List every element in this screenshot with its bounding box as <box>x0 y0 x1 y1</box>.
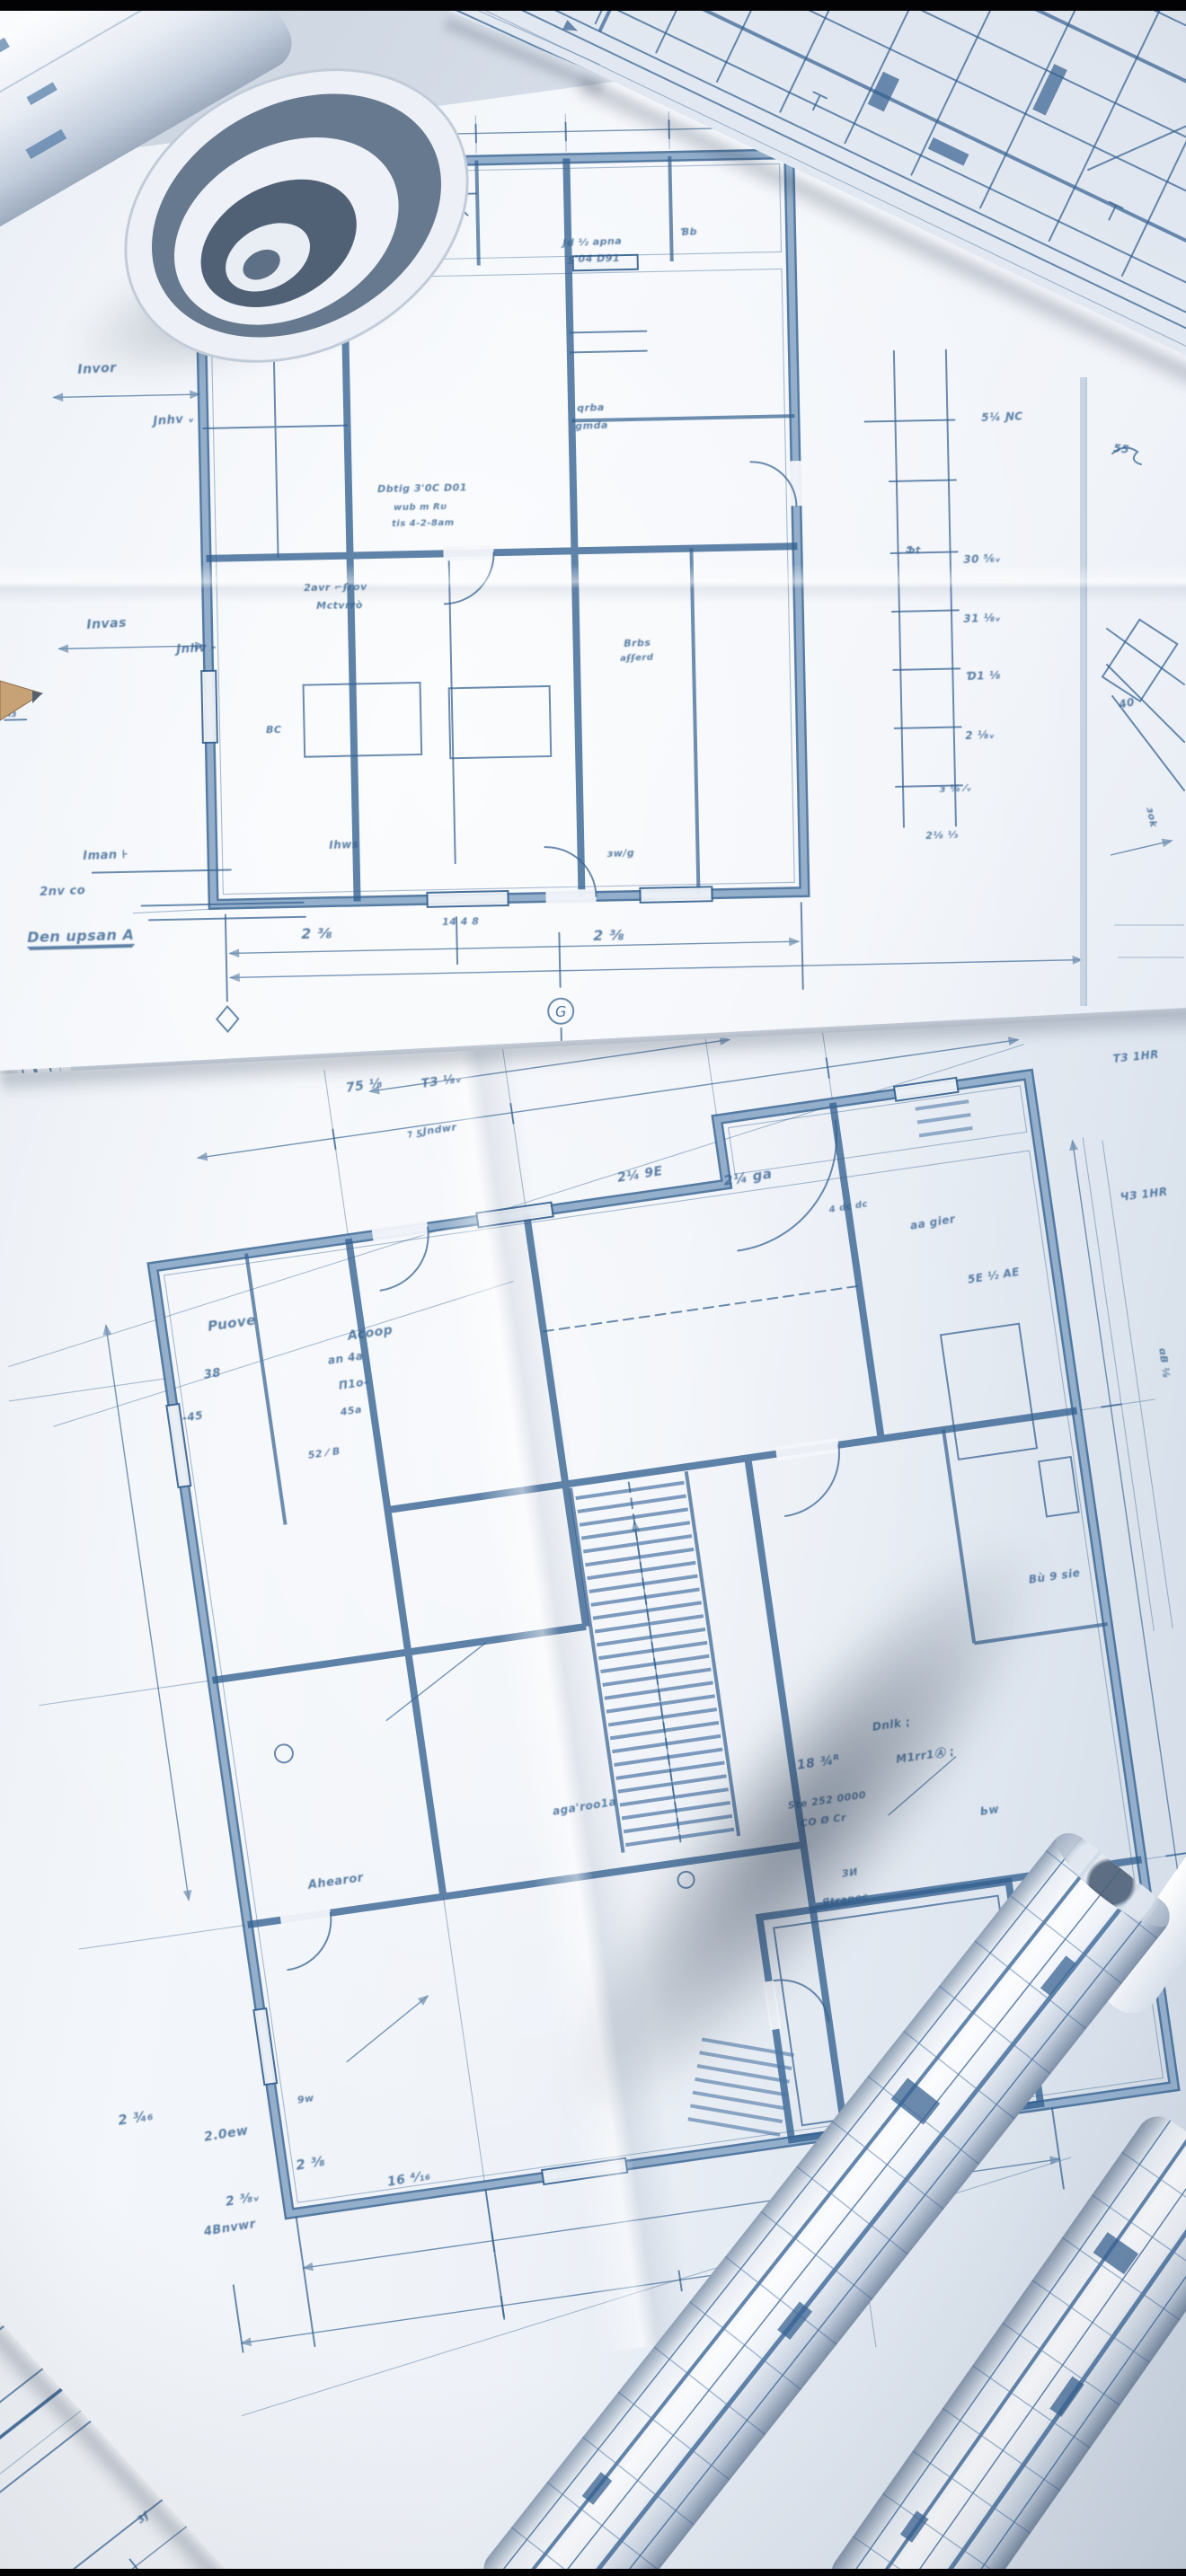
roll-top-left-drawing <box>0 0 1186 2576</box>
blueprints-photo-scene: 34⅛ᵥ-4s. 3ʄ <box>0 0 1186 2576</box>
blueprint-roll-top-left <box>0 0 1186 2576</box>
letterbox-bottom <box>0 2569 1186 2576</box>
letterbox-top <box>0 0 1186 11</box>
